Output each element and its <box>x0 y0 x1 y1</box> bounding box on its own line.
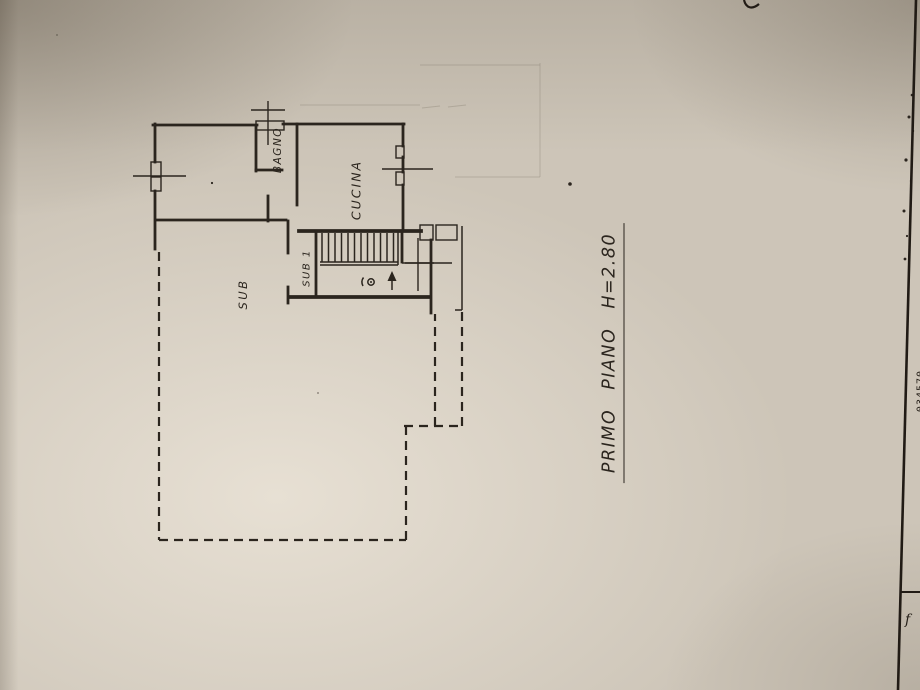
room-label-sub: SUB <box>236 278 250 309</box>
room-label-cucina: CUCINA <box>349 160 364 220</box>
scanned-floor-plan-sheet: BAGNO CUCINA SUB SUB 1 PRIMO PIANO H=2.8… <box>0 0 920 690</box>
pencil-construction-lines <box>300 63 540 177</box>
window-symbols <box>151 121 457 240</box>
room-label-sub1: SUB 1 <box>302 249 313 287</box>
sheet-edge-numbers: 034570 <box>916 370 920 412</box>
stair-direction-arrow <box>362 271 397 290</box>
sheet-border-line <box>898 0 920 690</box>
staircase <box>320 231 398 265</box>
plan-caption: PRIMO PIANO H=2.80 <box>600 223 625 483</box>
sheet-edge-letter-mark: f <box>905 612 910 628</box>
room-label-bagno: BAGNO <box>272 127 284 173</box>
floor-plan-drawing <box>0 0 920 690</box>
ink-specks <box>56 34 914 549</box>
top-edge-mark <box>744 0 759 7</box>
